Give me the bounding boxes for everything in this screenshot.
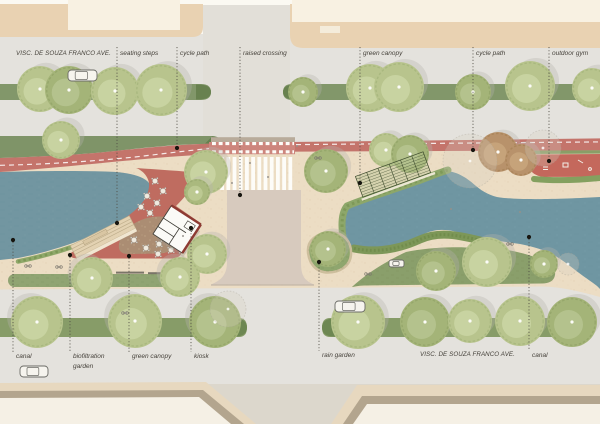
svg-text:VISC. DE SOUZA FRANCO AVE.: VISC. DE SOUZA FRANCO AVE.: [420, 351, 515, 358]
svg-text:kiosk: kiosk: [194, 353, 210, 360]
svg-text:green canopy: green canopy: [363, 50, 403, 57]
svg-text:raised crossing: raised crossing: [243, 50, 287, 57]
svg-text:rain garden: rain garden: [322, 352, 355, 359]
svg-text:green canopy: green canopy: [132, 353, 172, 360]
svg-text:canal: canal: [16, 353, 32, 360]
svg-text:cycle path: cycle path: [180, 50, 210, 57]
svg-text:biofiltration: biofiltration: [73, 353, 105, 360]
svg-text:seating steps: seating steps: [120, 50, 159, 57]
svg-text:garden: garden: [73, 363, 94, 370]
svg-text:canal: canal: [532, 352, 548, 359]
svg-text:cycle path: cycle path: [476, 50, 506, 57]
svg-text:VISC. DE SOUZA FRANCO AVE.: VISC. DE SOUZA FRANCO AVE.: [16, 50, 111, 57]
svg-text:outdoor gym: outdoor gym: [552, 50, 589, 57]
